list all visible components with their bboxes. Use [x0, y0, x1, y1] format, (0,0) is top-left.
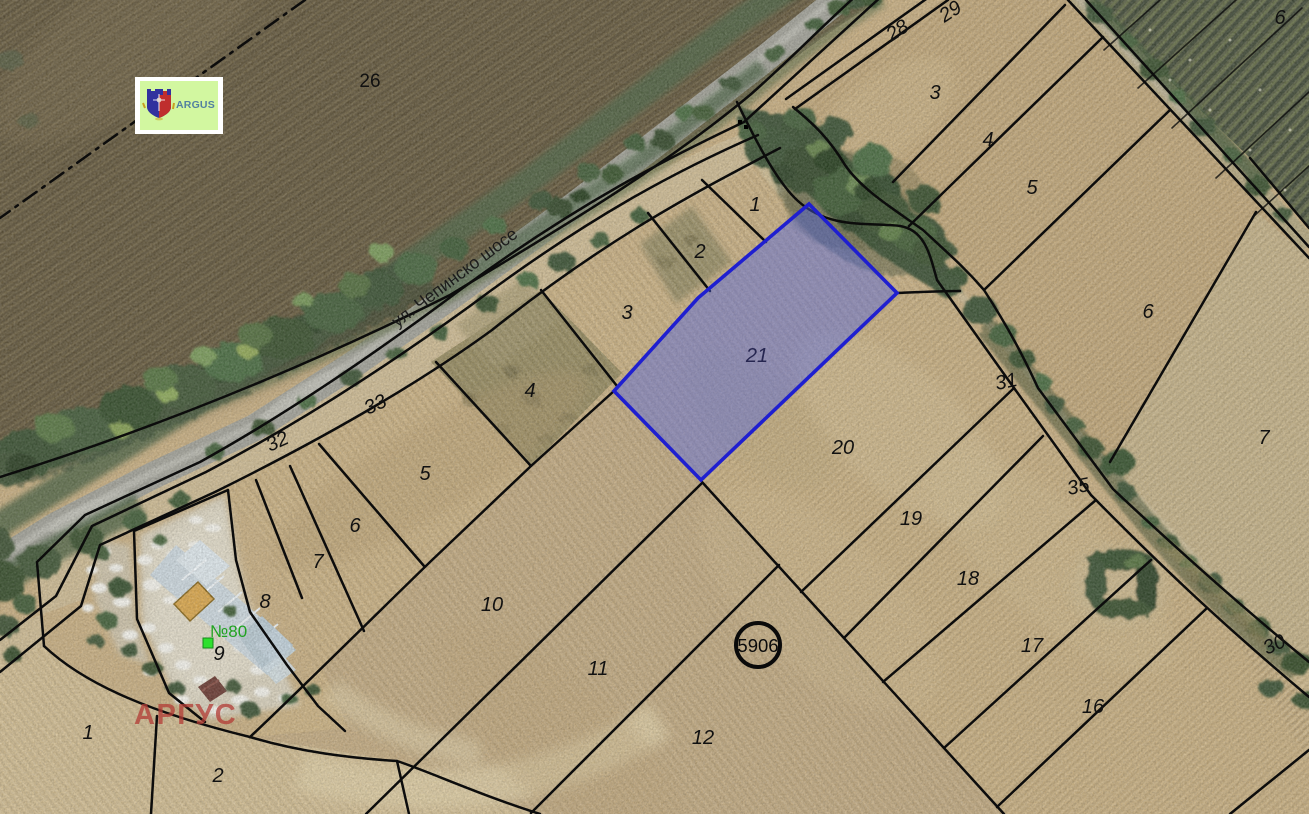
- svg-text:7: 7: [312, 551, 324, 573]
- svg-text:19: 19: [900, 508, 922, 530]
- svg-text:2: 2: [693, 241, 705, 263]
- svg-text:21: 21: [745, 345, 768, 367]
- svg-text:18: 18: [957, 568, 979, 590]
- svg-text:31: 31: [993, 369, 1019, 395]
- svg-text:26: 26: [359, 71, 380, 92]
- svg-text:№80: №80: [210, 622, 247, 641]
- svg-text:1: 1: [82, 722, 93, 744]
- svg-text:11: 11: [588, 658, 609, 680]
- svg-text:17: 17: [1021, 635, 1044, 657]
- svg-text:ARGUS: ARGUS: [176, 99, 215, 111]
- svg-text:6: 6: [349, 515, 361, 537]
- svg-text:10: 10: [481, 594, 503, 616]
- svg-text:3: 3: [929, 82, 940, 104]
- svg-text:АРГУС: АРГУС: [134, 699, 237, 731]
- svg-text:5906: 5906: [737, 635, 778, 656]
- svg-text:20: 20: [831, 437, 854, 459]
- svg-text:6: 6: [1142, 301, 1154, 323]
- svg-text:8: 8: [259, 591, 270, 613]
- svg-text:16: 16: [1082, 696, 1105, 718]
- svg-text:7: 7: [1258, 427, 1270, 449]
- svg-text:5: 5: [419, 463, 431, 485]
- svg-text:1: 1: [749, 194, 760, 216]
- svg-text:4: 4: [982, 129, 993, 151]
- svg-text:12: 12: [692, 727, 714, 749]
- svg-text:9: 9: [213, 643, 224, 665]
- svg-text:6: 6: [1274, 7, 1286, 29]
- svg-text:5: 5: [1026, 177, 1038, 199]
- svg-text:2: 2: [211, 765, 223, 787]
- svg-text:3: 3: [621, 302, 632, 324]
- svg-text:4: 4: [524, 380, 535, 402]
